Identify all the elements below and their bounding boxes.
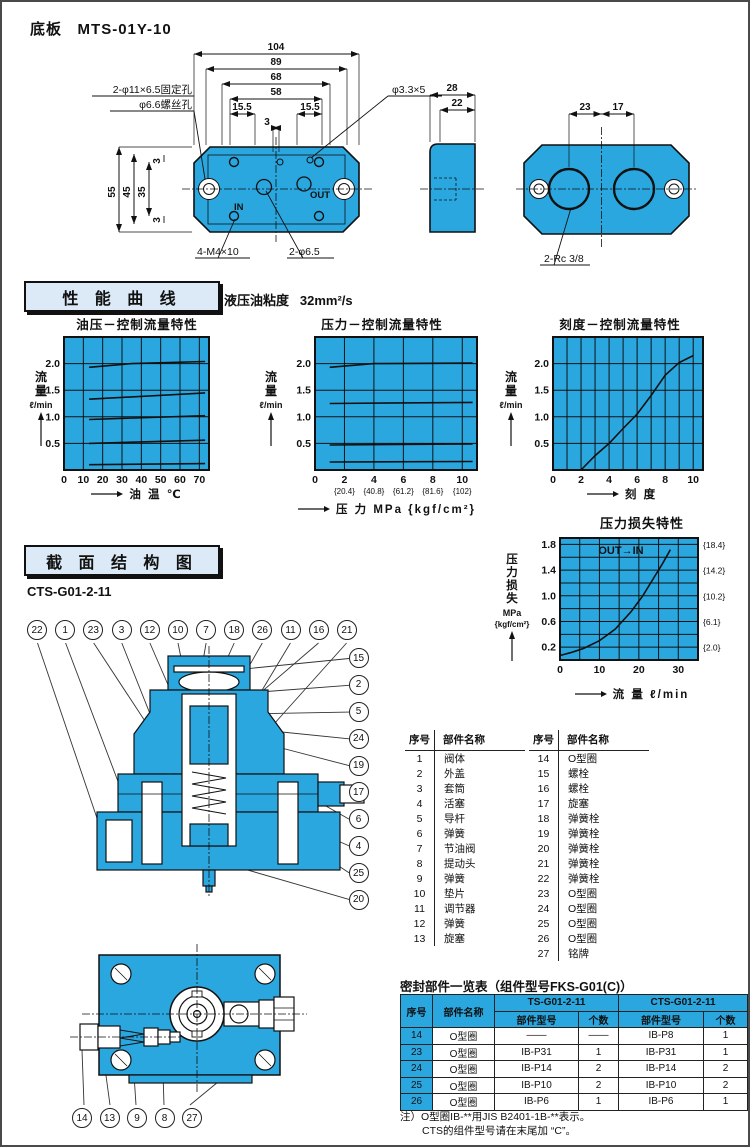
parts-row: 23O型圈 bbox=[529, 886, 649, 901]
part-balloon-10: 10 bbox=[168, 620, 188, 640]
chart4-x-axis-label: 流 量 ℓ/min bbox=[547, 686, 717, 702]
parts-row: 7节油阀 bbox=[405, 841, 525, 856]
svg-text:10: 10 bbox=[77, 474, 89, 486]
svg-text:4: 4 bbox=[371, 474, 377, 486]
part-balloon-20: 20 bbox=[349, 890, 369, 910]
svg-text:{102}: {102} bbox=[453, 487, 472, 496]
parts-row: 20弹簧栓 bbox=[529, 841, 649, 856]
svg-text:6: 6 bbox=[400, 474, 406, 486]
svg-text:2.0: 2.0 bbox=[534, 358, 549, 370]
parts-row: 6弹簧 bbox=[405, 826, 525, 841]
svg-text:20: 20 bbox=[97, 474, 109, 486]
part-balloon-12: 12 bbox=[140, 620, 160, 640]
svg-text:1.0: 1.0 bbox=[534, 411, 549, 423]
seal-row: 14O型圈————IB-P81 bbox=[401, 1028, 748, 1045]
chart2-y-axis-label: 流量 ℓ/min bbox=[258, 370, 284, 446]
chart1-xlabel-text: 油 温 ℃ bbox=[129, 486, 182, 502]
label-out-port: OUT bbox=[310, 190, 330, 201]
svg-text:6: 6 bbox=[634, 474, 640, 486]
label-port: 2-φ6.5 bbox=[289, 246, 320, 258]
dim-17: 17 bbox=[612, 102, 624, 113]
seal-row: 25O型圈IB-P102IB-P102 bbox=[401, 1077, 748, 1094]
part-balloon-27: 27 bbox=[182, 1108, 202, 1128]
chart1-x-axis-label: 油 温 ℃ bbox=[57, 486, 217, 502]
svg-text:1.5: 1.5 bbox=[534, 385, 549, 397]
seal-table-title: 密封部件一览表（组件型号FKS-G01(C)） bbox=[400, 976, 633, 995]
parts-col-name: 部件名称 bbox=[559, 730, 650, 751]
svg-text:2: 2 bbox=[342, 474, 348, 486]
chart4-y-axis-label: 压力损失 MPa {kgf/cm²} bbox=[497, 554, 527, 661]
dim-3a: 3 bbox=[152, 158, 163, 164]
y-axis-arrow-icon bbox=[267, 412, 275, 446]
parts-table-left: 序号 部件名称 1阀体2外盖3套筒4活塞5导杆6弹簧7节油阀8提动头9弹簧10垫… bbox=[405, 730, 525, 946]
chart3-title: 刻度－控制流量特性 bbox=[530, 314, 710, 333]
chart-scale-flow: 02468100.51.01.52.0 bbox=[525, 332, 711, 492]
viscosity-value: 32mm²/s bbox=[300, 293, 353, 308]
structure-section-title: 截 面 结 构 图 bbox=[46, 549, 198, 573]
parts-row: 24O型圈 bbox=[529, 901, 649, 916]
part-balloon-21: 21 bbox=[337, 620, 357, 640]
part-balloon-23: 23 bbox=[83, 620, 103, 640]
seal-parts-table: 序号 部件名称 TS-G01-2-11 CTS-G01-2-11 部件型号 个数… bbox=[400, 994, 748, 1111]
svg-text:{20.4}: {20.4} bbox=[334, 487, 355, 496]
svg-text:20: 20 bbox=[633, 664, 645, 676]
part-balloon-16: 16 bbox=[309, 620, 329, 640]
chart-oil-temp-flow: 0102030405060700.51.01.52.0 bbox=[34, 332, 216, 492]
parts-row: 15螺栓 bbox=[529, 766, 649, 781]
seal-row: 24O型圈IB-P142IB-P142 bbox=[401, 1061, 748, 1078]
svg-text:70: 70 bbox=[193, 474, 205, 486]
parts-col-seq: 序号 bbox=[529, 730, 559, 751]
x-axis-arrow-icon bbox=[91, 490, 123, 498]
parts-col-name: 部件名称 bbox=[435, 730, 526, 751]
parts-row: 14O型圈 bbox=[529, 751, 649, 767]
chart1-y-axis-label: 流量 ℓ/min bbox=[28, 370, 54, 446]
dim-3: 3 bbox=[264, 117, 270, 128]
svg-text:0.2: 0.2 bbox=[541, 642, 556, 654]
seal-row: 23O型圈IB-P311IB-P311 bbox=[401, 1044, 748, 1061]
y-axis-arrow-icon bbox=[507, 412, 515, 446]
dim-68: 68 bbox=[270, 72, 282, 83]
svg-text:{2.0}: {2.0} bbox=[703, 643, 721, 653]
parts-table-right: 序号 部件名称 14O型圈15螺栓16螺栓17旋塞18弹簧栓19弹簧栓20弹簧栓… bbox=[529, 730, 649, 961]
label-rc: 2-Rc 3/8 bbox=[544, 253, 584, 265]
label-fixing-hole: 2-φ11×6.5固定孔 bbox=[113, 83, 193, 96]
seal-group-ts: TS-G01-2-11 bbox=[495, 995, 619, 1012]
chart3-x-axis-label: 刻 度 bbox=[547, 486, 697, 502]
parts-row: 22弹簧栓 bbox=[529, 871, 649, 886]
svg-text:2: 2 bbox=[578, 474, 584, 486]
svg-text:{14.2}: {14.2} bbox=[703, 566, 725, 576]
y-axis-arrow-icon bbox=[37, 412, 45, 446]
chart4-ylabel-text: 压力损失 bbox=[505, 554, 519, 606]
label-pin-hole: φ3.3×5 bbox=[392, 84, 426, 96]
dim-89: 89 bbox=[270, 57, 282, 68]
part-balloon-4: 4 bbox=[349, 836, 369, 856]
svg-text:50: 50 bbox=[155, 474, 167, 486]
svg-text:{40.8}: {40.8} bbox=[363, 487, 384, 496]
dim-45: 45 bbox=[122, 186, 133, 198]
chart1-title: 油压－控制流量特性 bbox=[52, 314, 222, 333]
parts-row: 11调节器 bbox=[405, 901, 525, 916]
svg-text:1.0: 1.0 bbox=[541, 590, 556, 602]
dim-23: 23 bbox=[579, 102, 591, 113]
chart3-yunit-text: ℓ/min bbox=[500, 400, 523, 410]
structure-model-code: CTS-G01-2-11 bbox=[27, 584, 112, 599]
chart2-x-axis-label: 压 力 MPa {kgf/cm²} bbox=[287, 501, 487, 517]
parts-col-seq: 序号 bbox=[405, 730, 435, 751]
dim-35: 35 bbox=[137, 186, 148, 198]
part-balloon-1: 1 bbox=[55, 620, 75, 640]
base-plate-drawing: 104 89 68 58 15.5 15.5 3 55 45 35 3 3 2-… bbox=[22, 32, 732, 277]
seal-group-cts: CTS-G01-2-11 bbox=[619, 995, 748, 1012]
svg-text:OUT→IN: OUT→IN bbox=[598, 545, 643, 557]
balloon-row-bottom: 14139827 bbox=[72, 1108, 202, 1128]
viscosity-note: 液压油粘度 32mm²/s bbox=[224, 290, 353, 309]
chart-pressure-flow: 02{20.4}4{40.8}6{61.2}8{81.6}10{102}0.51… bbox=[285, 332, 485, 504]
part-balloon-14: 14 bbox=[72, 1108, 92, 1128]
part-balloon-8: 8 bbox=[155, 1108, 175, 1128]
parts-row: 10垫片 bbox=[405, 886, 525, 901]
chart3-y-axis-label: 流量 ℓ/min bbox=[498, 370, 524, 446]
performance-section-title: 性 能 曲 线 bbox=[62, 285, 181, 309]
label-in-port: IN bbox=[234, 202, 244, 213]
svg-text:{81.6}: {81.6} bbox=[422, 487, 443, 496]
svg-text:30: 30 bbox=[672, 664, 684, 676]
part-balloon-22: 22 bbox=[27, 620, 47, 640]
svg-text:0.5: 0.5 bbox=[296, 438, 311, 450]
balloon-row-top: 221233121071826111621 bbox=[27, 620, 357, 640]
parts-row: 9弹簧 bbox=[405, 871, 525, 886]
parts-row: 4活塞 bbox=[405, 796, 525, 811]
part-balloon-11: 11 bbox=[281, 620, 301, 640]
svg-text:2.0: 2.0 bbox=[296, 358, 311, 370]
chart4-yunit-text: MPa bbox=[503, 608, 522, 618]
parts-row: 2外盖 bbox=[405, 766, 525, 781]
cross-section-drawing bbox=[22, 642, 387, 942]
parts-row: 5导杆 bbox=[405, 811, 525, 826]
svg-text:40: 40 bbox=[135, 474, 147, 486]
svg-text:0.5: 0.5 bbox=[534, 438, 549, 450]
note-line-1: 注）O型圈IB-**用JIS B2401-1B-**表示。 bbox=[400, 1110, 590, 1124]
chart3-ylabel-text: 流量 bbox=[504, 370, 518, 398]
svg-text:1.5: 1.5 bbox=[296, 385, 311, 397]
chart2-xlabel-text: 压 力 MPa {kgf/cm²} bbox=[336, 501, 476, 517]
svg-text:0: 0 bbox=[550, 474, 556, 486]
parts-row: 16螺栓 bbox=[529, 781, 649, 796]
parts-row: 27铭牌 bbox=[529, 946, 649, 961]
seal-sub-model: 部件型号 bbox=[495, 1011, 579, 1028]
svg-text:0.6: 0.6 bbox=[541, 616, 556, 628]
svg-text:60: 60 bbox=[174, 474, 186, 486]
x-axis-arrow-icon bbox=[587, 490, 619, 498]
dim-22: 22 bbox=[451, 98, 463, 109]
parts-row: 18弹簧栓 bbox=[529, 811, 649, 826]
svg-text:{61.2}: {61.2} bbox=[393, 487, 414, 496]
svg-text:0: 0 bbox=[61, 474, 67, 486]
chart4-xlabel-text: 流 量 ℓ/min bbox=[613, 686, 690, 702]
x-axis-arrow-icon bbox=[298, 505, 330, 513]
part-balloon-15: 15 bbox=[349, 648, 369, 668]
svg-text:30: 30 bbox=[116, 474, 128, 486]
svg-text:{6.1}: {6.1} bbox=[703, 617, 721, 627]
parts-row: 25O型圈 bbox=[529, 916, 649, 931]
seal-row: 26O型圈IB-P61IB-P61 bbox=[401, 1094, 748, 1111]
part-balloon-25: 25 bbox=[349, 863, 369, 883]
part-balloon-24: 24 bbox=[349, 729, 369, 749]
seal-sub-qty: 个数 bbox=[704, 1011, 748, 1028]
parts-row: 26O型圈 bbox=[529, 931, 649, 946]
chart1-yunit-text: ℓ/min bbox=[30, 400, 53, 410]
parts-row: 17旋塞 bbox=[529, 796, 649, 811]
part-balloon-26: 26 bbox=[252, 620, 272, 640]
section-performance-curves: 性 能 曲 线 bbox=[24, 281, 220, 312]
dim-104: 104 bbox=[268, 42, 285, 53]
svg-text:10: 10 bbox=[456, 474, 468, 486]
dim-28: 28 bbox=[446, 83, 458, 94]
datasheet-page: 底板 MTS-01Y-10 bbox=[0, 0, 750, 1147]
part-balloon-6: 6 bbox=[349, 809, 369, 829]
chart3-xlabel-text: 刻 度 bbox=[625, 486, 657, 502]
chart4-yunit2-text: {kgf/cm²} bbox=[495, 620, 530, 629]
label-tap: 4-M4×10 bbox=[197, 246, 239, 258]
svg-text:8: 8 bbox=[662, 474, 668, 486]
part-balloon-2: 2 bbox=[349, 675, 369, 695]
svg-text:1.0: 1.0 bbox=[296, 411, 311, 423]
svg-text:2.0: 2.0 bbox=[45, 358, 60, 370]
parts-row: 21弹簧栓 bbox=[529, 856, 649, 871]
parts-row: 19弹簧栓 bbox=[529, 826, 649, 841]
svg-text:8: 8 bbox=[430, 474, 436, 486]
x-axis-arrow-icon bbox=[575, 690, 607, 698]
chart2-yunit-text: ℓ/min bbox=[260, 400, 283, 410]
svg-text:0: 0 bbox=[557, 664, 563, 676]
part-balloon-17: 17 bbox=[349, 782, 369, 802]
parts-row: 3套筒 bbox=[405, 781, 525, 796]
chart2-ylabel-text: 流量 bbox=[264, 370, 278, 398]
seal-col-name: 部件名称 bbox=[433, 995, 495, 1028]
part-balloon-9: 9 bbox=[127, 1108, 147, 1128]
svg-text:10: 10 bbox=[687, 474, 699, 486]
svg-text:1.4: 1.4 bbox=[541, 565, 556, 577]
seal-table-notes: 注）O型圈IB-**用JIS B2401-1B-**表示。 CTS的组件型号请在… bbox=[400, 1110, 590, 1138]
seal-sub-model: 部件型号 bbox=[619, 1011, 704, 1028]
svg-text:{18.4}: {18.4} bbox=[703, 540, 725, 550]
part-balloon-7: 7 bbox=[196, 620, 216, 640]
part-balloon-3: 3 bbox=[112, 620, 132, 640]
svg-text:4: 4 bbox=[606, 474, 612, 486]
chart-pressure-loss: 01020300.20.61.01.41.8{18.4}{14.2}{10.2}… bbox=[530, 530, 745, 682]
y-axis-arrow-icon bbox=[508, 631, 516, 661]
dim-3b: 3 bbox=[152, 217, 163, 223]
balloon-column-right: 1525241917642520 bbox=[348, 648, 369, 910]
svg-text:{10.2}: {10.2} bbox=[703, 591, 725, 601]
dim-155r: 15.5 bbox=[300, 102, 320, 113]
section-cross-structure: 截 面 结 构 图 bbox=[24, 545, 220, 576]
chart2-title: 压力－控制流量特性 bbox=[292, 314, 472, 333]
parts-row: 12弹簧 bbox=[405, 916, 525, 931]
parts-row: 13旋塞 bbox=[405, 931, 525, 946]
dim-155l: 15.5 bbox=[232, 102, 252, 113]
parts-row: 1阀体 bbox=[405, 751, 525, 767]
part-balloon-13: 13 bbox=[100, 1108, 120, 1128]
part-balloon-5: 5 bbox=[349, 702, 369, 722]
part-balloon-18: 18 bbox=[224, 620, 244, 640]
note-line-2: CTS的组件型号请在末尾加 “C”。 bbox=[400, 1124, 590, 1138]
dim-58: 58 bbox=[270, 87, 282, 98]
label-screw-hole: φ6.6螺丝孔 bbox=[139, 98, 192, 111]
svg-text:0: 0 bbox=[312, 474, 318, 486]
dim-55: 55 bbox=[107, 186, 118, 198]
seal-sub-qty: 个数 bbox=[579, 1011, 619, 1028]
chart1-ylabel-text: 流量 bbox=[34, 370, 48, 398]
seal-col-seq: 序号 bbox=[401, 995, 433, 1028]
viscosity-label: 液压油粘度 bbox=[224, 293, 289, 308]
svg-text:10: 10 bbox=[594, 664, 606, 676]
part-balloon-19: 19 bbox=[349, 756, 369, 776]
svg-text:1.8: 1.8 bbox=[541, 539, 556, 551]
parts-row: 8提动头 bbox=[405, 856, 525, 871]
